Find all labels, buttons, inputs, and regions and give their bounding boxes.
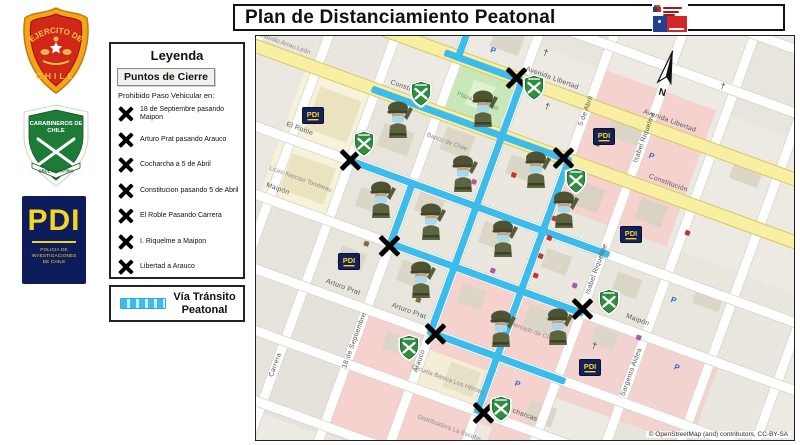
legend-item-label: I. Riquelme a Maipon — [140, 238, 206, 246]
page-title: Plan de Distanciamiento Peatonal — [235, 7, 555, 29]
closure-x-icon — [118, 107, 133, 122]
legend-item: Libertad a Arauco — [111, 254, 243, 280]
carabineros-logo-line2: CHILE — [47, 128, 65, 134]
soldier-icon — [488, 219, 518, 257]
legend-title: Leyenda — [111, 48, 243, 63]
poster: Plan de Distanciamiento Peatonal EJERCIT… — [0, 0, 800, 445]
soldier-icon — [416, 202, 446, 240]
soldier-icon — [543, 307, 573, 345]
legend-item-label: Libertad a Arauco — [140, 263, 195, 271]
legend-intro: Prohibido Paso Vehicular en: — [118, 91, 230, 100]
closure-x-icon — [118, 158, 133, 173]
map-attribution: © OpenStreetMap (and) contributors, CC-B… — [646, 431, 791, 438]
carabineros-badge-icon — [488, 394, 514, 424]
soldier-icon — [366, 180, 396, 218]
pdi-badge-icon — [579, 359, 601, 376]
legend-item-label: Constitucion pasando 5 de Abril — [140, 187, 238, 195]
pdi-logo-acronym: PDI — [27, 206, 80, 236]
closure-x-icon — [118, 260, 133, 275]
soldier-icon — [521, 150, 551, 188]
transit-legend: Vía Tránsito Peatonal — [109, 285, 245, 322]
pdi-logo-rule — [32, 241, 76, 243]
legend-item-label: Arturo Prat pasando Arauco — [140, 136, 226, 144]
carabineros-de-chile-logo: CARABINEROS DE CHILE ORDEN Y PATRIA — [18, 103, 94, 189]
government-wordmark — [669, 28, 684, 30]
closure-x-icon — [118, 209, 133, 224]
pdi-logo-sub2: DE CHILE — [43, 259, 66, 265]
ministry-text-line — [663, 11, 679, 13]
soldier-icon — [486, 309, 516, 347]
pdi-badge-icon — [338, 253, 360, 270]
pdi-badge-icon — [593, 128, 615, 145]
flag-blue-block — [653, 16, 667, 32]
city-map: ConstituciónConstituciónAvenida Libertad… — [255, 35, 795, 441]
carabineros-badge-icon — [408, 79, 434, 109]
carabineros-badge-icon — [396, 333, 422, 363]
soldier-icon — [468, 89, 498, 127]
closure-x-mark — [378, 235, 400, 257]
legend-item: Constitucion pasando 5 de Abril — [111, 178, 243, 204]
closure-x-icon — [118, 234, 133, 249]
pdi-logo: PDI POLICIA DE INVESTIGACIONES DE CHILE — [22, 196, 86, 284]
pdi-logo-sub1: POLICIA DE INVESTIGACIONES — [22, 247, 86, 260]
closure-x-mark — [571, 298, 593, 320]
closure-x-mark — [424, 323, 446, 345]
legend-item: Cocharcha a 5 de Abril — [111, 152, 243, 178]
legend-subtitle: Puntos de Cierre — [117, 68, 215, 86]
north-label: N — [657, 87, 667, 99]
legend-item: 18 de Septiembre pasando Maipon — [111, 101, 243, 127]
title-bar: Plan de Distanciamiento Peatonal — [233, 4, 785, 31]
coat-of-arms-icon — [653, 5, 661, 14]
map-overlay-layer — [256, 36, 794, 440]
transit-legend-label: Vía Tránsito Peatonal — [166, 291, 243, 316]
gobierno-de-chile-logo — [652, 4, 688, 33]
carabineros-logo-banner: ORDEN Y PATRIA — [38, 169, 73, 174]
flag-red-block — [667, 16, 687, 32]
legend-item-label: El Roble Pasando Carrera — [140, 212, 222, 220]
carabineros-badge-icon — [563, 166, 589, 196]
legend-item: Arturo Prat pasando Arauco — [111, 127, 243, 153]
closure-x-icon — [118, 132, 133, 147]
army-logo-bottom-text: CHILE — [36, 71, 77, 81]
legend-item: I. Riquelme a Maipon — [111, 229, 243, 255]
legend-item-label: Cocharcha a 5 de Abril — [140, 161, 211, 169]
legend-item: El Roble Pasando Carrera — [111, 203, 243, 229]
carabineros-badge-icon — [521, 73, 547, 103]
carabineros-logo-line1: CARABINEROS DE — [30, 121, 83, 127]
soldier-icon — [406, 260, 436, 298]
ministry-text-line — [663, 7, 682, 9]
flag-star — [658, 20, 661, 23]
closure-x-icon — [118, 183, 133, 198]
legend: Leyenda Puntos de Cierre Prohibido Paso … — [109, 42, 245, 279]
pdi-badge-icon — [302, 107, 324, 124]
carabineros-badge-icon — [596, 287, 622, 317]
ejercito-de-chile-logo: EJERCITO DE CHILE — [17, 5, 95, 95]
legend-item-label: 18 de Septiembre pasando Maipon — [140, 106, 243, 121]
pedestrian-route-symbol — [120, 298, 166, 309]
pdi-badge-icon — [620, 226, 642, 243]
soldier-icon — [448, 154, 478, 192]
carabineros-badge-icon — [351, 129, 377, 159]
